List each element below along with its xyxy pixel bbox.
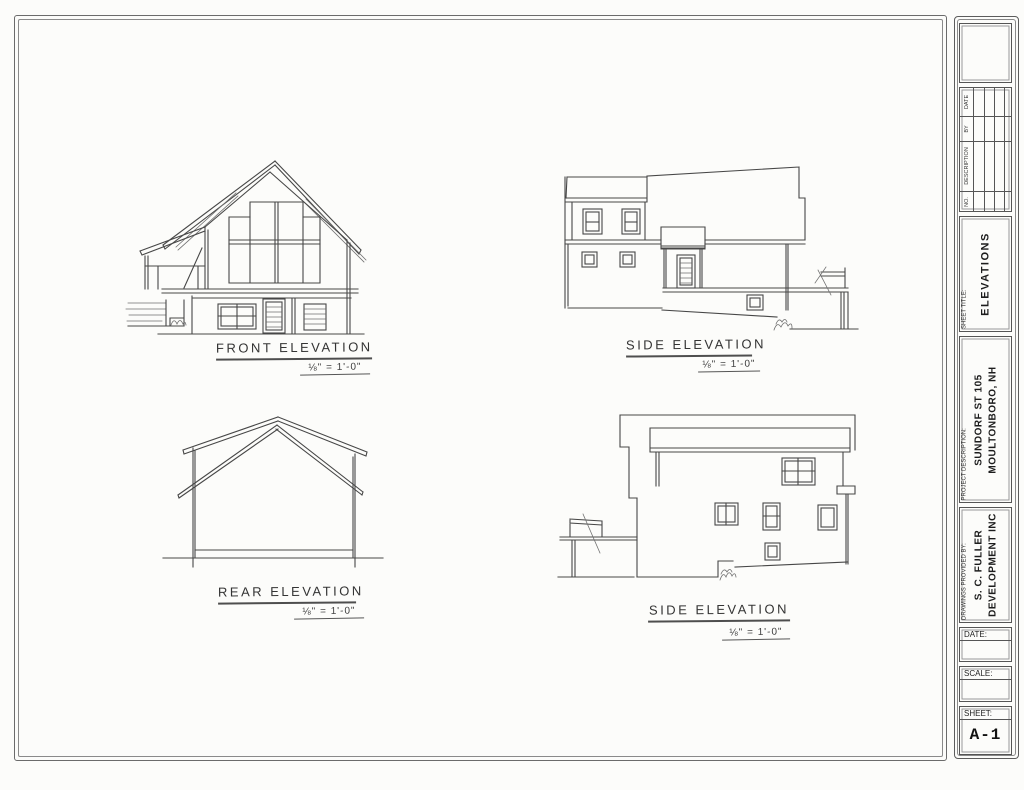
date-label: DATE: [960,628,1011,641]
scale-label: SCALE: [960,667,1011,680]
sheet-number: A-1 [960,720,1011,744]
project-line-1: SUNDORF ST 105 [973,374,984,465]
revision-grid-line [984,88,985,211]
rear-elevation-scale: ⅛" = 1'-0" [294,605,364,619]
rear-elevation-title: REAR ELEVATION [218,583,356,604]
front-elevation-drawing [118,146,370,346]
project-description-label: PROJECT DESCRIPTION: [961,428,967,500]
revision-grid-line [973,88,974,211]
side-elevation-lower-drawing [550,406,890,586]
side-elevation-upper-title: SIDE ELEVATION [626,336,752,357]
sheet-title: ELEVATIONS [978,232,993,316]
front-elevation-scale: ⅛" = 1'-0" [300,361,370,375]
revision-col-no: NO. [960,191,973,213]
project-description-box: PROJECT DESCRIPTION: SUNDORF ST 105 MOUL… [959,336,1012,503]
sheet-border [14,15,947,761]
project-line-2: MOULTONBORO, NH [987,366,998,473]
sheet-title-box: SHEET TITLE: ELEVATIONS [959,216,1012,332]
provided-line-2: DEVELOPMENT INC [987,513,998,617]
revision-col-description: DESCRIPTION [960,141,973,191]
revision-col-date: DATE [960,88,973,116]
rear-elevation-drawing [148,412,393,574]
date-box: DATE: [959,627,1012,662]
sheet-label: SHEET: [960,707,1011,720]
sheet-number-box: SHEET: A-1 [959,706,1012,755]
side-elevation-upper-drawing [552,146,868,338]
revision-col-by: BY [960,116,973,141]
provided-by-box: DRAWINGS PROVIDED BY: S. C. FULLER DEVEL… [959,507,1012,623]
scale-box: SCALE: [959,666,1012,702]
title-block: DATE BY DESCRIPTION NO. SHEET TITLE: ELE… [954,16,1019,759]
drawing-sheet: FRONT ELEVATION ⅛" = 1'-0" [0,0,1024,790]
revision-table: DATE BY DESCRIPTION NO. [959,87,1012,212]
side-elevation-lower-title: SIDE ELEVATION [648,601,790,622]
sheet-title-label: SHEET TITLE: [961,290,967,329]
front-elevation-title: FRONT ELEVATION [216,339,372,360]
provided-line-1: S. C. FULLER [973,530,984,600]
side-elevation-upper-scale: ⅛" = 1'-0" [698,358,760,372]
stamp-box [959,23,1012,83]
side-elevation-lower-scale: ⅛" = 1'-0" [722,626,790,640]
revision-grid-line [994,88,995,211]
revision-grid-line [1004,88,1005,211]
sheet-border-inner [18,19,943,757]
provided-by-label: DRAWINGS PROVIDED BY: [961,543,967,620]
